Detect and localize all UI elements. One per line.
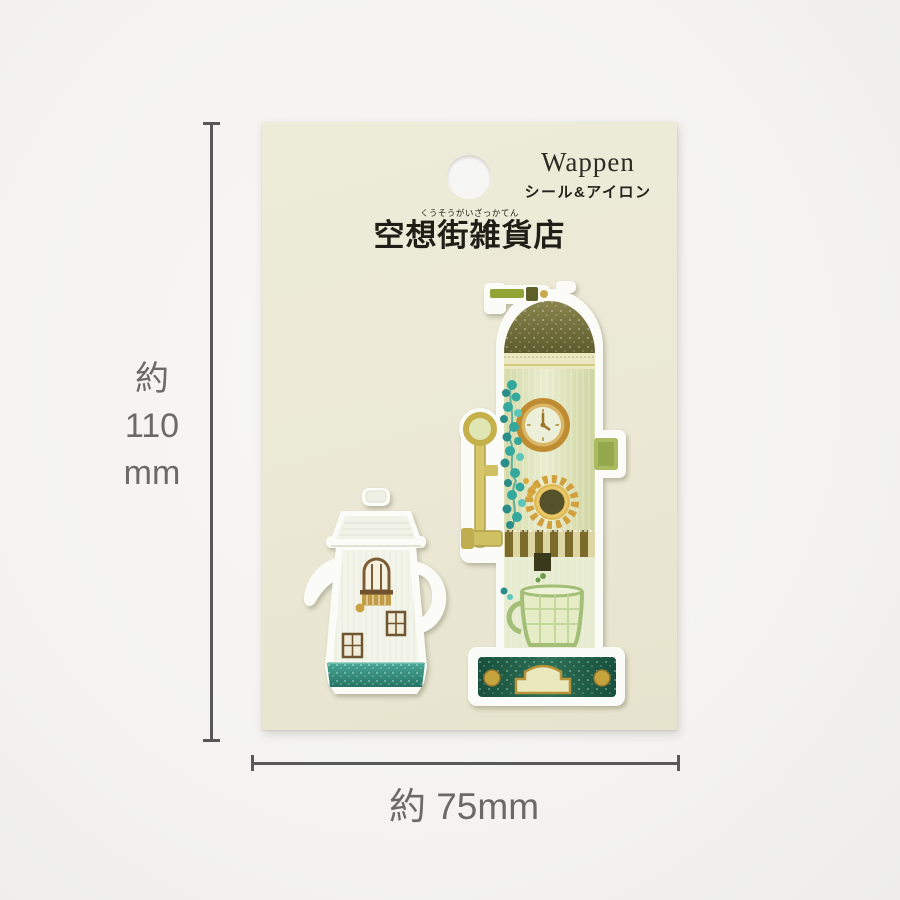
teapot-house-patch-icon [303,487,449,701]
height-dimension-cap-bottom [203,739,220,742]
width-dimension-cap-right [677,755,680,771]
clock-tower-patch-icon [460,281,626,707]
brand-name: 空想街雑貨店 [262,219,677,252]
height-dimension-cap-top [203,122,220,125]
brand-logo: くうそうがいざっかてん 空想街雑貨店 [262,208,677,252]
striped-belt [504,530,595,557]
hang-hole [447,155,491,199]
product-title: Wappen [508,147,668,178]
height-label-line2: 110 [98,403,206,450]
product-card: Wappen シール&アイロン くうそうがいざっかてん 空想街雑貨店 [262,122,677,730]
gold-lamp-dot [356,604,365,613]
birdhouse-hole [534,553,551,571]
tower-band-upper [504,353,595,369]
height-label-line1: 約 [98,356,206,403]
width-dimension-line [252,762,680,765]
height-dimension-line [210,124,213,740]
clock-face [516,398,570,452]
width-dimension-cap-left [251,755,254,771]
arched-window [360,559,393,605]
product-subtitle: シール&アイロン [498,181,678,202]
height-dimension-label: 約 110 mm [98,356,206,497]
height-label-line3: mm [98,450,206,497]
width-dimension-label: 約 75mm [374,776,554,830]
product-photo: 約 110 mm 約 75mm Wappen シール&アイロン くうそうがいざっ… [0,0,900,900]
tower-base [478,657,616,697]
side-window-tab [594,438,618,470]
